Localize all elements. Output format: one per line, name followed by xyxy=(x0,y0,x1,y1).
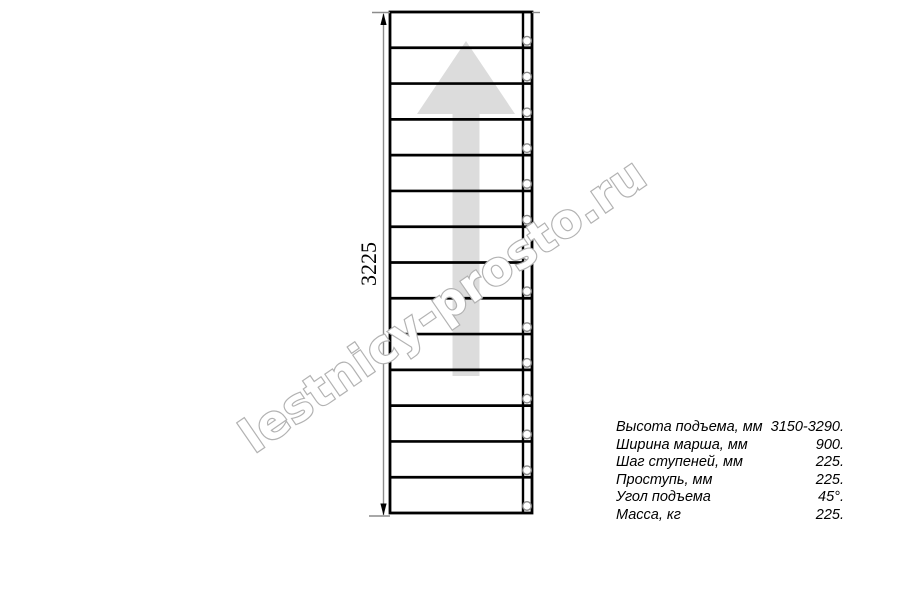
spec-row: Высота подъема, мм3150-3290. xyxy=(616,419,844,437)
spec-table: Высота подъема, мм3150-3290.Ширина марша… xyxy=(616,419,844,524)
spec-value: 45°. xyxy=(818,489,844,507)
fastener-circle xyxy=(523,430,532,439)
fastener-circle xyxy=(523,72,532,81)
fastener-circle xyxy=(523,180,532,189)
spec-value: 225. xyxy=(816,507,844,525)
fastener-circle xyxy=(523,394,532,403)
fastener-circle xyxy=(523,108,532,117)
dimension-label: 3225 xyxy=(356,242,381,286)
spec-row: Ширина марша, мм900. xyxy=(616,437,844,455)
dimension-arrow-bottom-icon xyxy=(380,504,386,516)
watermark-text: lestnicy-prosto.ru xyxy=(230,147,656,464)
spec-value: 225. xyxy=(816,454,844,472)
spec-label: Проступь, мм xyxy=(616,472,712,490)
spec-row: Проступь, мм225. xyxy=(616,472,844,490)
fastener-circle xyxy=(523,36,532,45)
spec-label: Шаг ступеней, мм xyxy=(616,454,743,472)
fastener-circle xyxy=(523,359,532,368)
spec-label: Угол подъема xyxy=(616,489,711,507)
fastener-circle xyxy=(523,466,532,475)
fastener-circle xyxy=(523,144,532,153)
spec-value: 225. xyxy=(816,472,844,490)
spec-label: Масса, кг xyxy=(616,507,681,525)
spec-row: Шаг ступеней, мм225. xyxy=(616,454,844,472)
spec-row: Масса, кг225. xyxy=(616,507,844,525)
fastener-circle xyxy=(523,502,532,511)
fastener-circle xyxy=(523,287,532,296)
spec-value: 900. xyxy=(816,437,844,455)
drawing-page: 3225lestnicy-prosto.ru Высота подъема, м… xyxy=(0,0,900,600)
spec-value: 3150-3290. xyxy=(771,419,844,437)
spec-label: Высота подъема, мм xyxy=(616,419,763,437)
dimension-arrow-top-icon xyxy=(380,13,386,25)
fastener-circle xyxy=(523,323,532,332)
spec-row: Угол подъема45°. xyxy=(616,489,844,507)
spec-label: Ширина марша, мм xyxy=(616,437,748,455)
